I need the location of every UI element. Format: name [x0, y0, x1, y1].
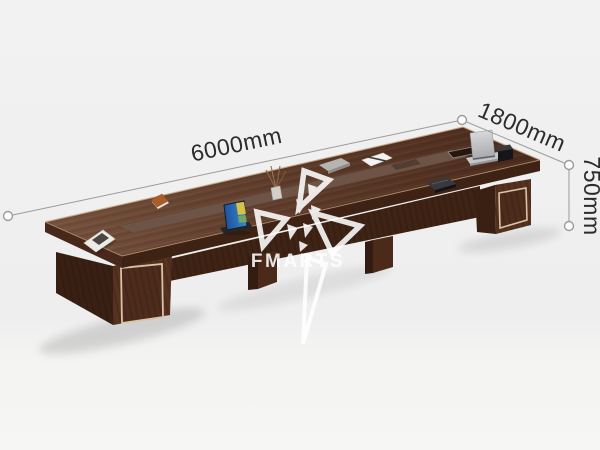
- product-image: 6000mm 1800mm 750mm FMARTS: [0, 0, 600, 450]
- dimension-endpoint: [458, 116, 467, 125]
- watermark-wordmark: FMARTS: [251, 251, 345, 272]
- left-pedestal-trim: [121, 264, 163, 323]
- laptop-lid: [470, 130, 495, 160]
- diffuser-vase: [271, 186, 282, 200]
- render-canvas: 6000mm 1800mm 750mm FMARTS: [0, 0, 600, 450]
- right-pedestal-trim: [499, 188, 527, 228]
- middle-leg-2-side: [365, 240, 373, 274]
- mini-laptop-screen-art2: [238, 215, 247, 223]
- dimension-endpoint: [565, 161, 574, 170]
- dimension-endpoint: [565, 222, 574, 231]
- right-pedestal-side: [475, 185, 496, 234]
- dimension-endpoint: [4, 212, 13, 221]
- dimension-label-height: 750mm: [579, 156, 600, 235]
- middle-leg-2-front: [373, 236, 393, 273]
